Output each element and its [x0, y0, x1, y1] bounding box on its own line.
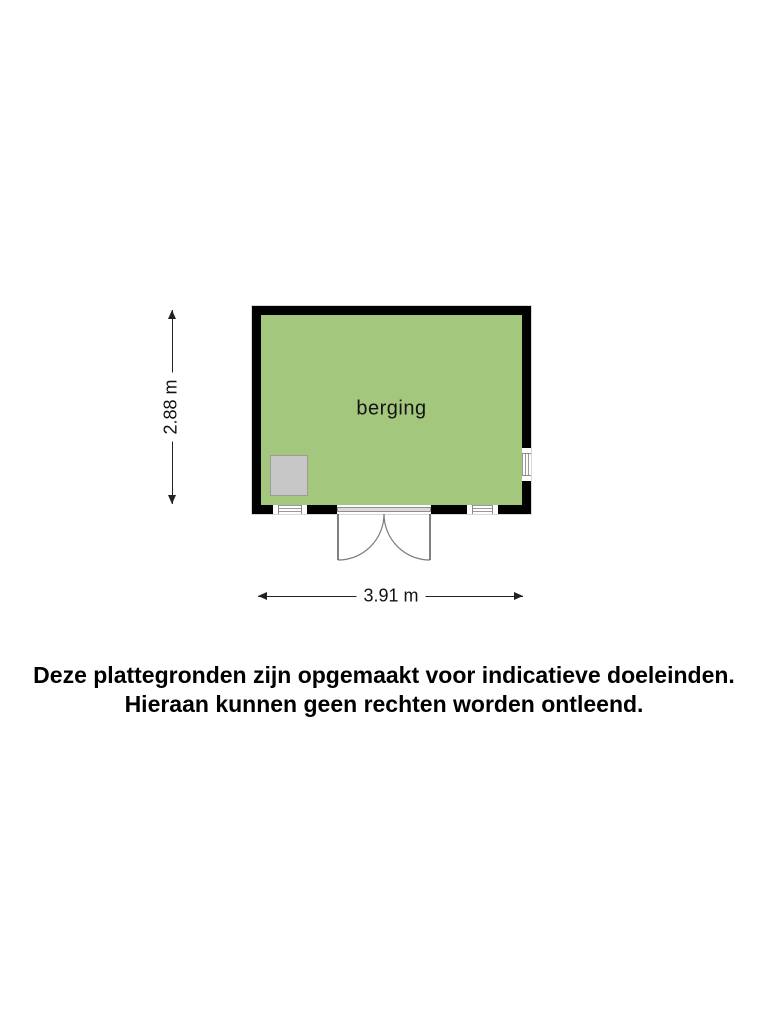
arrow-left-icon [258, 592, 267, 600]
dimension-horizontal-label: 3.91 m [356, 585, 425, 608]
disclaimer: Deze plattegronden zijn opgemaakt voor i… [0, 661, 768, 719]
building-outline: berging [252, 306, 531, 514]
arrow-down-icon [168, 495, 176, 504]
arrow-right-icon [514, 592, 523, 600]
arrow-up-icon [168, 310, 176, 319]
door-swing-arc-left [338, 514, 384, 560]
window-bottom-right [467, 505, 498, 514]
window-bottom-left [273, 505, 307, 514]
dimension-vertical-label: 2.88 m [160, 372, 183, 441]
door-swing-arc-right [384, 514, 430, 560]
floorplan-page: berging 2.88 m 3.91 m [0, 0, 768, 1024]
disclaimer-line-2: Hieraan kunnen geen rechten worden ontle… [0, 690, 768, 719]
fixture-square [270, 455, 308, 496]
window-glass [278, 505, 302, 514]
door-sill [337, 507, 431, 512]
room-label: berging [356, 398, 426, 421]
disclaimer-line-1: Deze plattegronden zijn opgemaakt voor i… [0, 661, 768, 690]
window-right-wall [522, 448, 531, 481]
window-glass [522, 453, 531, 476]
room-berging: berging [261, 315, 522, 505]
window-glass [472, 505, 493, 514]
double-door [252, 514, 531, 566]
